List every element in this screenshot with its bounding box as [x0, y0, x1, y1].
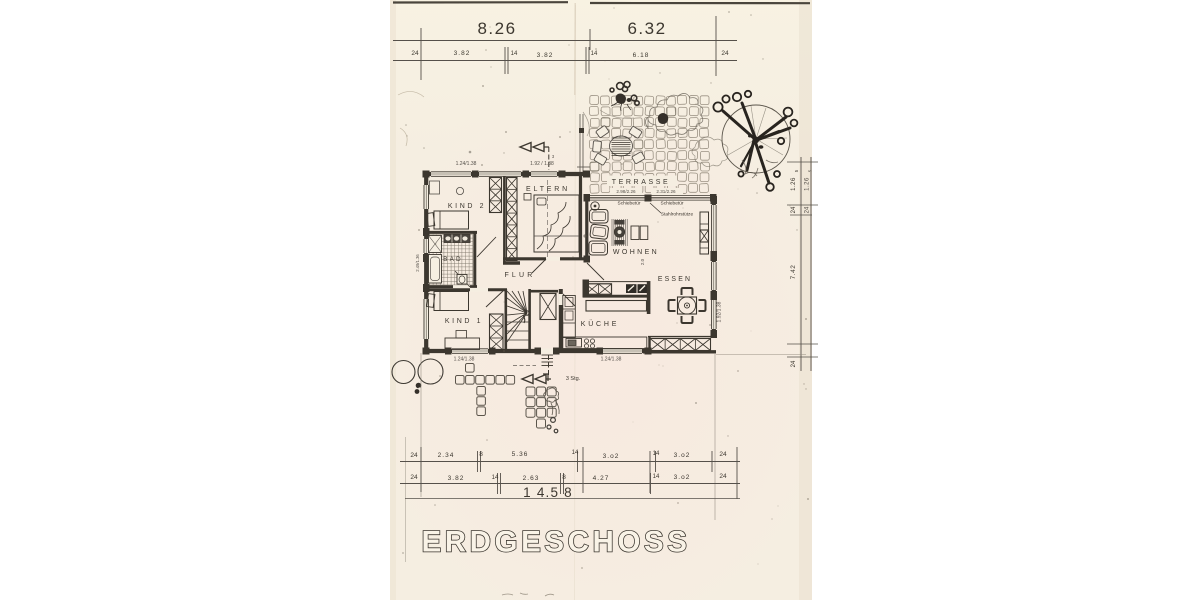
svg-text:3.82: 3.82 — [448, 475, 465, 482]
svg-text:KIND 2: KIND 2 — [448, 203, 486, 210]
svg-text:4.27: 4.27 — [593, 475, 610, 482]
svg-text:8.26: 8.26 — [477, 19, 516, 38]
svg-text:3.o2: 3.o2 — [674, 474, 691, 481]
svg-text:24: 24 — [805, 206, 811, 213]
svg-text:2.34: 2.34 — [438, 452, 455, 459]
svg-text:3.82: 3.82 — [537, 52, 554, 59]
svg-text:14: 14 — [492, 475, 499, 481]
svg-text:3.o2: 3.o2 — [603, 453, 620, 460]
svg-text:KIND 1: KIND 1 — [445, 318, 483, 325]
svg-text:2.63: 2.63 — [523, 475, 540, 482]
svg-text:3 Stg.: 3 Stg. — [566, 376, 581, 382]
svg-text:1.92/1.38: 1.92/1.38 — [717, 301, 723, 322]
svg-text:5.36: 5.36 — [512, 451, 529, 458]
svg-text:1 4.5 8: 1 4.5 8 — [523, 485, 573, 500]
svg-text:ELTERN: ELTERN — [526, 186, 570, 193]
svg-text:14: 14 — [653, 474, 660, 480]
svg-text:Stahlrohrstütze: Stahlrohrstütze — [661, 212, 694, 218]
svg-text:1.26: 1.26 — [805, 177, 811, 191]
svg-text:6.32: 6.32 — [627, 19, 666, 38]
svg-text:ERDGESCHOSS: ERDGESCHOSS — [421, 526, 690, 559]
svg-text:24: 24 — [721, 50, 729, 57]
svg-text:1.24/1.38: 1.24/1.38 — [601, 357, 622, 363]
svg-text:14: 14 — [511, 51, 518, 57]
svg-text:14: 14 — [591, 51, 598, 57]
svg-text:14: 14 — [653, 451, 660, 457]
svg-text:2.0: 2.0 — [640, 258, 645, 265]
svg-text:1.24/1.38: 1.24/1.38 — [454, 357, 475, 363]
svg-text:1.24/1.38: 1.24/1.38 — [456, 161, 477, 167]
svg-text:14: 14 — [572, 450, 579, 456]
svg-text:2.31/2.26: 2.31/2.26 — [656, 189, 676, 194]
svg-text:2.98/2.26: 2.98/2.26 — [616, 189, 636, 194]
svg-text:8: 8 — [562, 474, 566, 481]
svg-text:6.18: 6.18 — [633, 52, 650, 59]
svg-text:Schiebetür: Schiebetür — [661, 201, 684, 207]
svg-text:1.92 / 1.38: 1.92 / 1.38 — [530, 161, 554, 167]
svg-text:WOHNEN: WOHNEN — [613, 249, 659, 256]
svg-text:24: 24 — [411, 50, 419, 57]
svg-text:Schiebetür: Schiebetür — [618, 201, 641, 207]
svg-text:7.42: 7.42 — [790, 265, 797, 280]
svg-text:KÜCHE: KÜCHE — [581, 320, 620, 328]
svg-text:24: 24 — [410, 452, 418, 459]
svg-text:1.26: 1.26 — [791, 177, 797, 191]
svg-text:24: 24 — [791, 206, 797, 213]
svg-text:24: 24 — [410, 474, 418, 481]
svg-text:TERRASSE: TERRASSE — [612, 179, 671, 186]
svg-text:ESSEN: ESSEN — [658, 276, 692, 283]
svg-text:3.82: 3.82 — [454, 50, 471, 57]
svg-text:24: 24 — [719, 451, 727, 458]
svg-text:8: 8 — [479, 451, 483, 458]
svg-text:3.o2: 3.o2 — [674, 452, 691, 459]
svg-text:FLUR: FLUR — [504, 272, 535, 279]
svg-text:24: 24 — [719, 473, 727, 480]
svg-text:2.49/1.36: 2.49/1.36 — [415, 254, 420, 272]
svg-text:24: 24 — [791, 360, 797, 367]
svg-text:BAD: BAD — [443, 256, 463, 263]
